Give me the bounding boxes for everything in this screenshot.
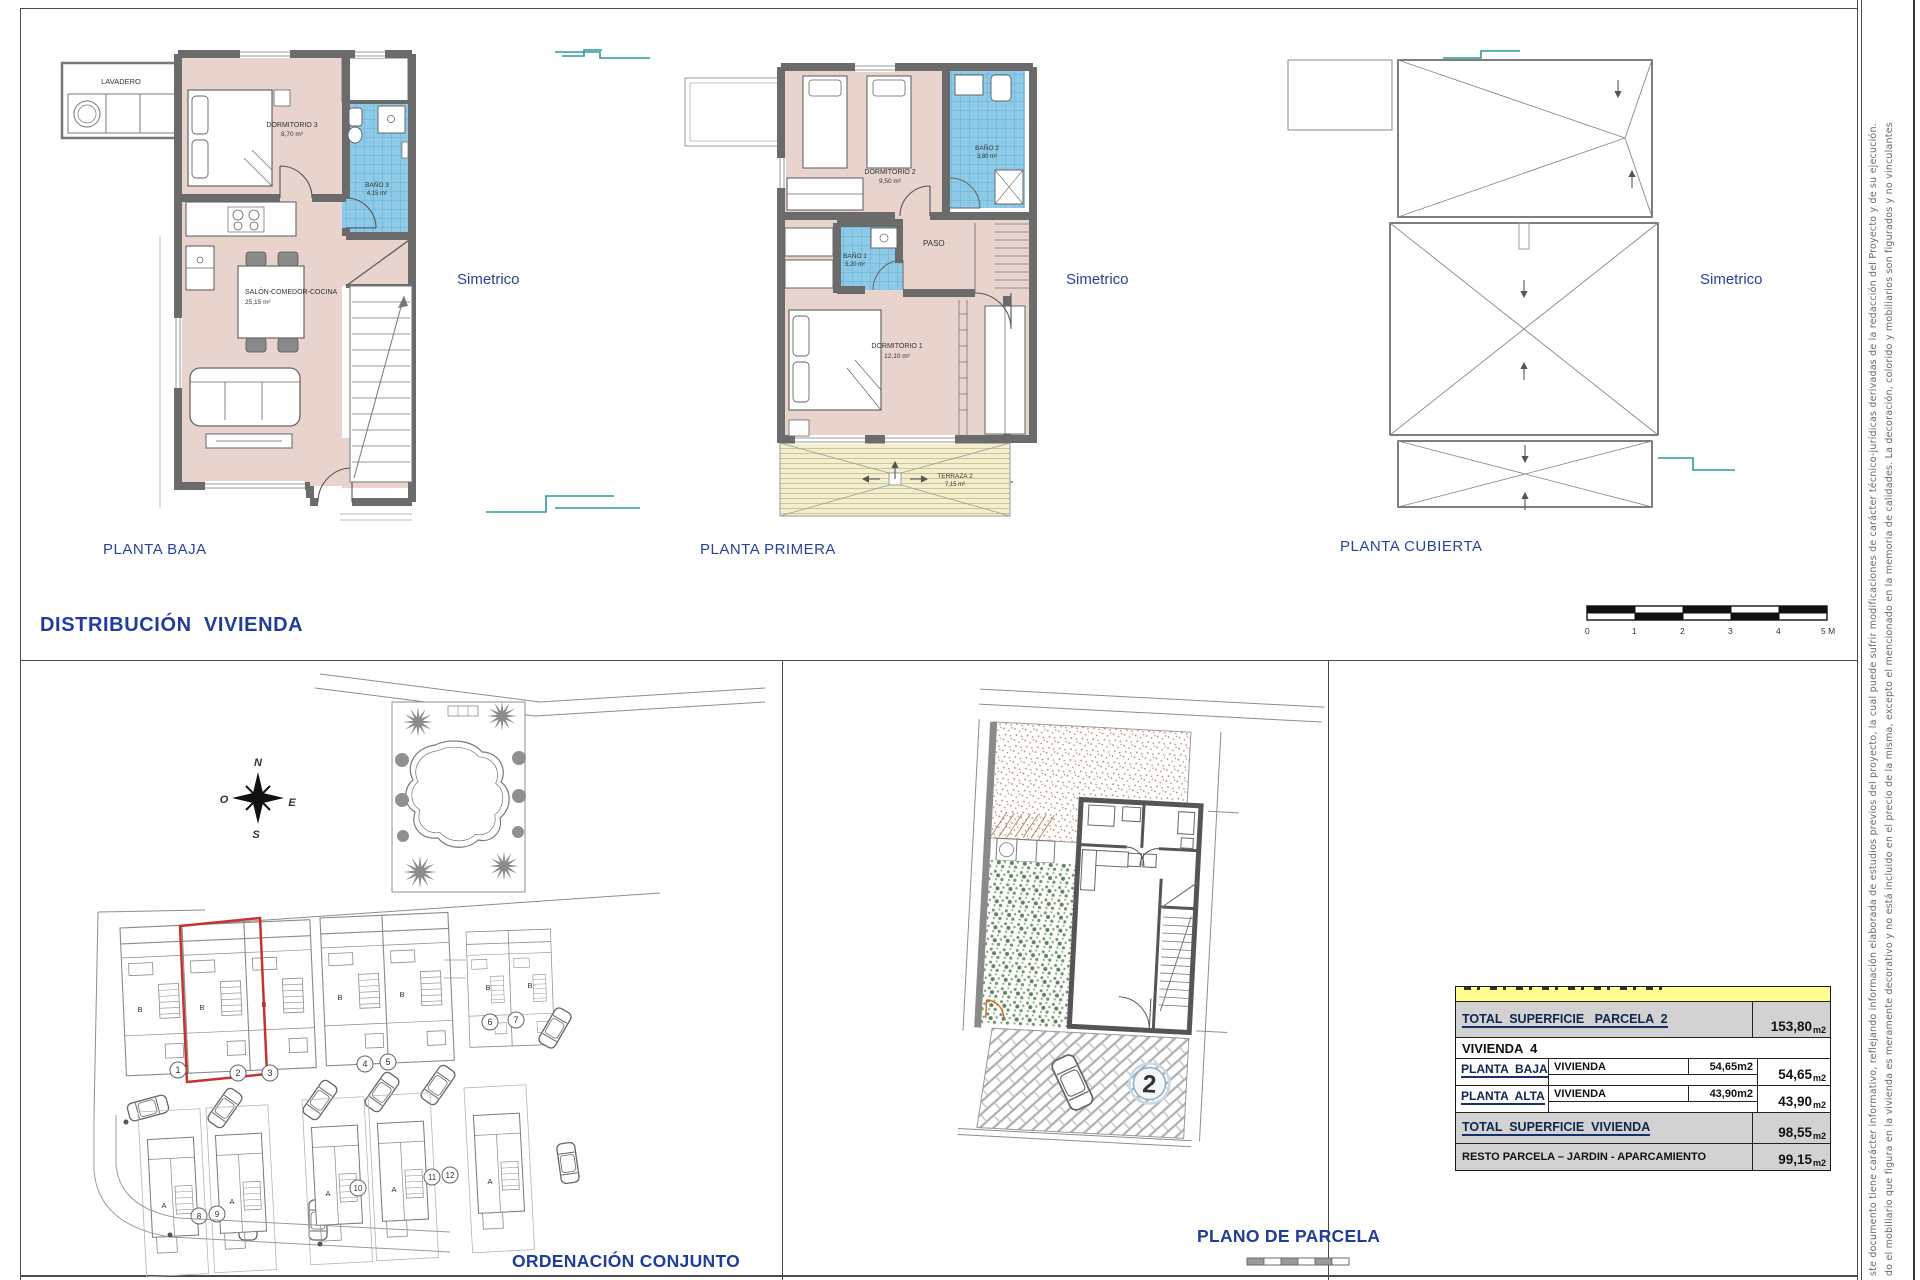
planta-baja-title: PLANTA BAJA bbox=[103, 541, 207, 558]
svg-text:9,50 m²: 9,50 m² bbox=[879, 178, 902, 185]
row-planta-baja: PLANTA BAJA VIVIENDA 54,65m2 54,65m2 bbox=[1456, 1059, 1830, 1086]
planta-cubierta-title: PLANTA CUBIERTA bbox=[1340, 538, 1483, 555]
planta-primera-title: PLANTA PRIMERA bbox=[700, 541, 836, 558]
row-value: 98,55m2 bbox=[1752, 1113, 1830, 1143]
svg-text:11: 11 bbox=[428, 1173, 437, 1182]
svg-text:A: A bbox=[161, 1201, 166, 1210]
svg-text:4,15 m²: 4,15 m² bbox=[367, 191, 387, 197]
row-concept: VIVIENDA bbox=[1548, 1059, 1688, 1074]
svg-text:B: B bbox=[337, 993, 342, 1002]
svg-text:O: O bbox=[220, 794, 229, 806]
parcel-number-badge: 2 bbox=[1128, 1063, 1170, 1105]
svg-text:4: 4 bbox=[1776, 626, 1781, 636]
row-planta-alta: PLANTA ALTA VIVIENDA 43,90m2 43,90m2 bbox=[1456, 1086, 1830, 1113]
frame-right-double bbox=[1861, 0, 1862, 1280]
svg-text:3,20 m²: 3,20 m² bbox=[845, 262, 865, 268]
svg-text:A: A bbox=[325, 1189, 330, 1198]
lower-house-row: A A A A A bbox=[138, 1085, 535, 1277]
plan-sheet: LAVADERO bbox=[0, 0, 1920, 1280]
frame-right-edge bbox=[1913, 0, 1915, 1280]
pool-garden bbox=[392, 701, 526, 892]
roof-annex bbox=[1288, 60, 1392, 130]
row-vivienda-header: VIVIENDA 4 bbox=[1456, 1038, 1830, 1059]
svg-text:10: 10 bbox=[354, 1184, 363, 1193]
svg-text:BAÑO 3: BAÑO 3 bbox=[365, 180, 389, 189]
scale-bar-ticks: 0 1 2 3 4 5 M bbox=[1585, 626, 1835, 636]
svg-text:TERRAZA 2: TERRAZA 2 bbox=[937, 473, 973, 480]
site-plan: N O E S B B B B B B bbox=[20, 660, 782, 1280]
planta-primera-plan: DORMITORIO 2 9,50 m² BAÑO 2 3,80 m² BAÑO… bbox=[555, 38, 1115, 530]
row-total: 43,90m2 bbox=[1757, 1086, 1830, 1112]
parcel-house bbox=[1069, 800, 1201, 1033]
parcel-plan: 2 bbox=[790, 665, 1430, 1265]
row-concept: VIVIENDA bbox=[1548, 1086, 1688, 1101]
svg-text:PASO: PASO bbox=[923, 239, 945, 248]
svg-text:E: E bbox=[288, 797, 296, 809]
row-total: 54,65m2 bbox=[1757, 1059, 1830, 1085]
svg-text:9: 9 bbox=[215, 1210, 220, 1219]
sofa bbox=[190, 368, 300, 426]
row-total-parcela: TOTAL SUPERFICIE PARCELA 2 153,80m2 bbox=[1456, 1002, 1830, 1038]
svg-text:A: A bbox=[487, 1177, 492, 1186]
lavadero-label: LAVADERO bbox=[101, 77, 141, 86]
svg-text:DORMITORIO 2: DORMITORIO 2 bbox=[864, 169, 915, 176]
svg-text:8,70 m²: 8,70 m² bbox=[281, 131, 304, 138]
frame-top bbox=[20, 8, 1858, 9]
svg-text:DORMITORIO 1: DORMITORIO 1 bbox=[871, 343, 922, 350]
table-clipped-header bbox=[1456, 987, 1830, 1002]
svg-text:2: 2 bbox=[1142, 1070, 1157, 1099]
svg-text:N: N bbox=[254, 757, 263, 769]
svg-text:25,15 m²: 25,15 m² bbox=[245, 299, 271, 306]
row-total-vivienda: TOTAL SUPERFICIE VIVIENDA 98,55m2 bbox=[1456, 1113, 1830, 1144]
row-resto: RESTO PARCELA – JARDIN - APARCAMIENTO 99… bbox=[1456, 1144, 1830, 1170]
row-value: 99,15m2 bbox=[1752, 1144, 1830, 1170]
tv-unit bbox=[206, 434, 292, 448]
sheet-section-title: DISTRIBUCIÓN VIVIENDA bbox=[40, 614, 303, 637]
disclaimer-line-1: ste documento tiene carácter informativo… bbox=[1868, 8, 1879, 1276]
frame-right-inner bbox=[1857, 0, 1858, 1280]
lavadero-counter bbox=[996, 838, 1055, 863]
svg-text:5 M: 5 M bbox=[1821, 626, 1835, 636]
svg-text:7: 7 bbox=[513, 1015, 518, 1025]
planta-baja-simetrico: Simetrico bbox=[457, 271, 520, 288]
row-label: PLANTA ALTA bbox=[1456, 1086, 1548, 1112]
svg-text:B: B bbox=[399, 990, 404, 999]
row-value: 153,80m2 bbox=[1752, 1002, 1830, 1037]
scale-bar: 0 1 2 3 4 5 M bbox=[1585, 602, 1845, 644]
svg-text:A: A bbox=[391, 1185, 396, 1194]
svg-text:S: S bbox=[252, 829, 260, 841]
divider-vertical-1 bbox=[782, 660, 783, 1280]
disclaimer-line-2: do el mobiliario que figura en la vivien… bbox=[1884, 8, 1895, 1276]
svg-text:SALÓN-COMEDOR-COCINA: SALÓN-COMEDOR-COCINA bbox=[245, 287, 338, 296]
svg-text:BAÑO 1: BAÑO 1 bbox=[843, 251, 867, 260]
svg-text:12,10 m²: 12,10 m² bbox=[884, 353, 910, 360]
svg-text:1: 1 bbox=[175, 1065, 180, 1075]
svg-text:1: 1 bbox=[1632, 626, 1637, 636]
svg-text:7,15 m²: 7,15 m² bbox=[945, 482, 965, 488]
svg-text:B: B bbox=[485, 983, 490, 992]
svg-text:5: 5 bbox=[385, 1057, 390, 1067]
row-label: RESTO PARCELA – JARDIN - APARCAMIENTO bbox=[1456, 1144, 1752, 1170]
svg-text:2: 2 bbox=[235, 1068, 240, 1078]
compass-rose-icon: N O E S bbox=[220, 757, 297, 841]
parcel-plan-title: PLANO DE PARCELA bbox=[1197, 1226, 1380, 1247]
row-label: TOTAL SUPERFICIE VIVIENDA bbox=[1456, 1113, 1752, 1143]
svg-text:0: 0 bbox=[1585, 626, 1590, 636]
svg-text:BAÑO 2: BAÑO 2 bbox=[975, 143, 999, 152]
svg-text:B: B bbox=[527, 981, 532, 990]
closet bbox=[342, 58, 408, 102]
svg-text:A: A bbox=[229, 1197, 234, 1206]
svg-text:3: 3 bbox=[1728, 626, 1733, 636]
planta-primera-simetrico: Simetrico bbox=[1066, 271, 1129, 288]
planta-cubierta-plan bbox=[1280, 45, 1750, 525]
svg-text:B: B bbox=[137, 1005, 142, 1014]
svg-text:3,80 m²: 3,80 m² bbox=[977, 154, 997, 160]
svg-text:3: 3 bbox=[267, 1068, 272, 1078]
svg-text:B: B bbox=[199, 1003, 204, 1012]
planta-cubierta-simetrico: Simetrico bbox=[1700, 271, 1763, 288]
room-lavadero bbox=[62, 63, 180, 138]
site-plan-title: ORDENACIÓN CONJUNTO bbox=[512, 1251, 740, 1272]
row-label: TOTAL SUPERFICIE PARCELA 2 bbox=[1456, 1002, 1752, 1037]
svg-text:4: 4 bbox=[362, 1059, 367, 1069]
surface-area-table: TOTAL SUPERFICIE PARCELA 2 153,80m2 VIVI… bbox=[1455, 986, 1831, 1171]
row-partial: 43,90m2 bbox=[1688, 1086, 1757, 1101]
svg-text:6: 6 bbox=[487, 1017, 492, 1027]
row-partial: 54,65m2 bbox=[1688, 1059, 1757, 1074]
planta-baja-plan: LAVADERO bbox=[40, 38, 625, 530]
svg-text:DORMITORIO 3: DORMITORIO 3 bbox=[266, 122, 317, 129]
svg-text:12: 12 bbox=[446, 1171, 455, 1180]
garden-speckle bbox=[981, 860, 1078, 1029]
parcel-mini-scale-bar bbox=[1245, 1256, 1355, 1270]
row-label: PLANTA BAJA bbox=[1456, 1059, 1548, 1085]
terraza2 bbox=[780, 443, 1010, 516]
svg-text:2: 2 bbox=[1680, 626, 1685, 636]
